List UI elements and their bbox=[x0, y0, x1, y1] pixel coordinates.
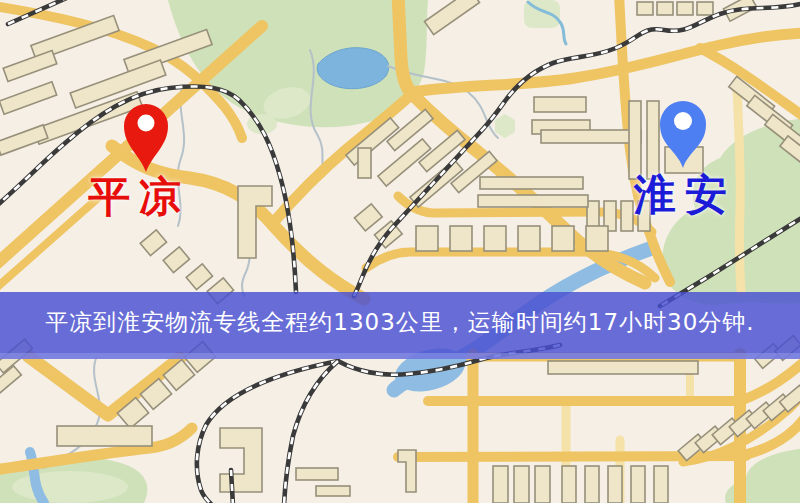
destination-city-label: 淮安 bbox=[634, 174, 736, 216]
destination-pin-hole bbox=[674, 112, 692, 130]
route-info-text: 平凉到淮安物流专线全程约1303公里，运输时间约17小时30分钟. bbox=[45, 307, 754, 338]
map-canvas[interactable] bbox=[0, 0, 800, 503]
route-info-banner: 平凉到淮安物流专线全程约1303公里，运输时间约17小时30分钟. bbox=[0, 292, 800, 359]
map-screenshot: 平凉 淮安 平凉到淮安物流专线全程约1303公里，运输时间约17小时30分钟. bbox=[0, 0, 800, 503]
origin-pin-hole bbox=[138, 115, 155, 132]
origin-city-label: 平凉 bbox=[88, 176, 190, 218]
